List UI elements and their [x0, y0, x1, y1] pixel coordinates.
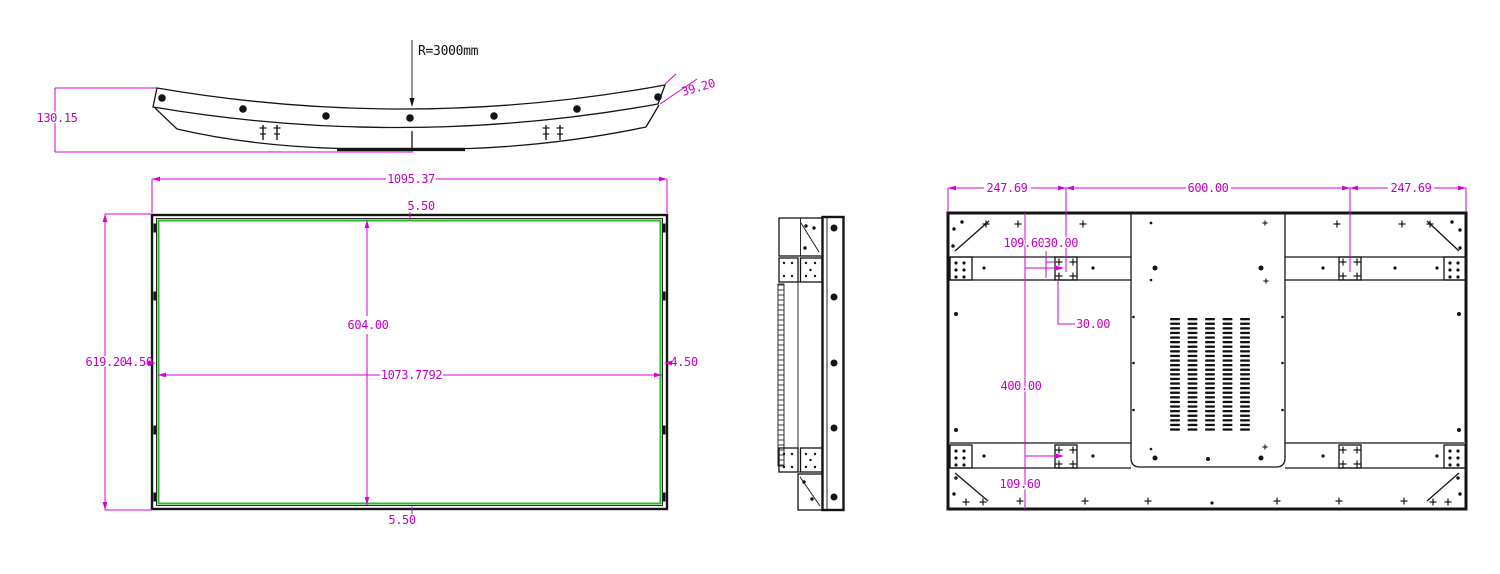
- dim-label-curved-height: 130.15: [37, 111, 78, 125]
- dim-vesa-hole-spacing: 30.00 30.00: [1044, 236, 1110, 331]
- side-rail-holes: [831, 225, 838, 501]
- side-body: [778, 282, 822, 466]
- front-view: 1095.37 619.20 5.50 5.50 4.50 4.: [86, 172, 698, 527]
- radius-label: R=3000mm: [418, 44, 479, 59]
- side-bottom-bracket: [779, 472, 823, 510]
- dim-top-frame: 5.50: [407, 199, 434, 220]
- dim-label-hole-h: 30.00: [1044, 236, 1078, 250]
- dim-label-mount-to-bottom: 109.60: [1000, 477, 1041, 491]
- drawing-canvas: 130.15 R=3000mm: [0, 0, 1500, 574]
- dim-end-rise: 39.20: [660, 74, 717, 104]
- bezel-latch-marks: [154, 224, 666, 502]
- side-top-connectors: [779, 258, 822, 282]
- dim-inner-width: 1073.7792: [158, 368, 662, 382]
- dim-label-inner-height: 604.00: [348, 318, 389, 332]
- clip-mark: [557, 125, 564, 140]
- dim-label-left-frame: 4.50: [125, 355, 152, 369]
- dim-label-overall-height: 619.20: [86, 355, 127, 369]
- side-view: [778, 217, 844, 510]
- dim-label-right-frame: 4.50: [670, 355, 697, 369]
- dim-label-hole-v: 30.00: [1076, 317, 1110, 331]
- side-bottom-connectors: [779, 448, 822, 472]
- vent-grid: [1170, 318, 1250, 433]
- back-view: 247.69 600.00 247.69 109.60 400.00 109.6…: [948, 181, 1466, 509]
- dim-label-overall-width: 1095.37: [387, 172, 435, 186]
- side-top-bracket: [779, 218, 823, 256]
- dim-inner-height: 604.00: [348, 220, 389, 505]
- dim-left-frame: 4.50: [125, 355, 156, 369]
- dim-label-left-span: 247.69: [987, 181, 1028, 195]
- dim-label-center-span: 600.00: [1188, 181, 1229, 195]
- dim-label-bottom-frame: 5.50: [388, 513, 415, 527]
- clip-mark: [274, 125, 281, 140]
- curved-top-view: 130.15 R=3000mm: [37, 40, 717, 152]
- dim-label-mount-height: 400.00: [1001, 379, 1042, 393]
- dim-back-spans: 247.69 600.00 247.69: [948, 181, 1466, 272]
- bezel-inner: [157, 219, 663, 506]
- panel-edge-hatched: [778, 284, 784, 466]
- engineering-drawing: 130.15 R=3000mm: [0, 0, 1500, 574]
- dim-label-end-rise: 39.20: [680, 76, 717, 99]
- dim-label-inner-width: 1073.7792: [381, 368, 443, 382]
- dim-right-frame: 4.50: [664, 355, 698, 369]
- dim-label-top-frame: 5.50: [407, 199, 434, 213]
- dim-label-top-to-mount: 109.60: [1004, 236, 1045, 250]
- clip-mark: [260, 125, 267, 140]
- bezel-outer: [152, 215, 667, 509]
- clip-mark: [543, 125, 550, 140]
- electronics-panel: [1131, 213, 1285, 467]
- dim-label-right-span: 247.69: [1391, 181, 1432, 195]
- radius-callout: R=3000mm: [409, 40, 478, 107]
- screen-border: [159, 221, 661, 504]
